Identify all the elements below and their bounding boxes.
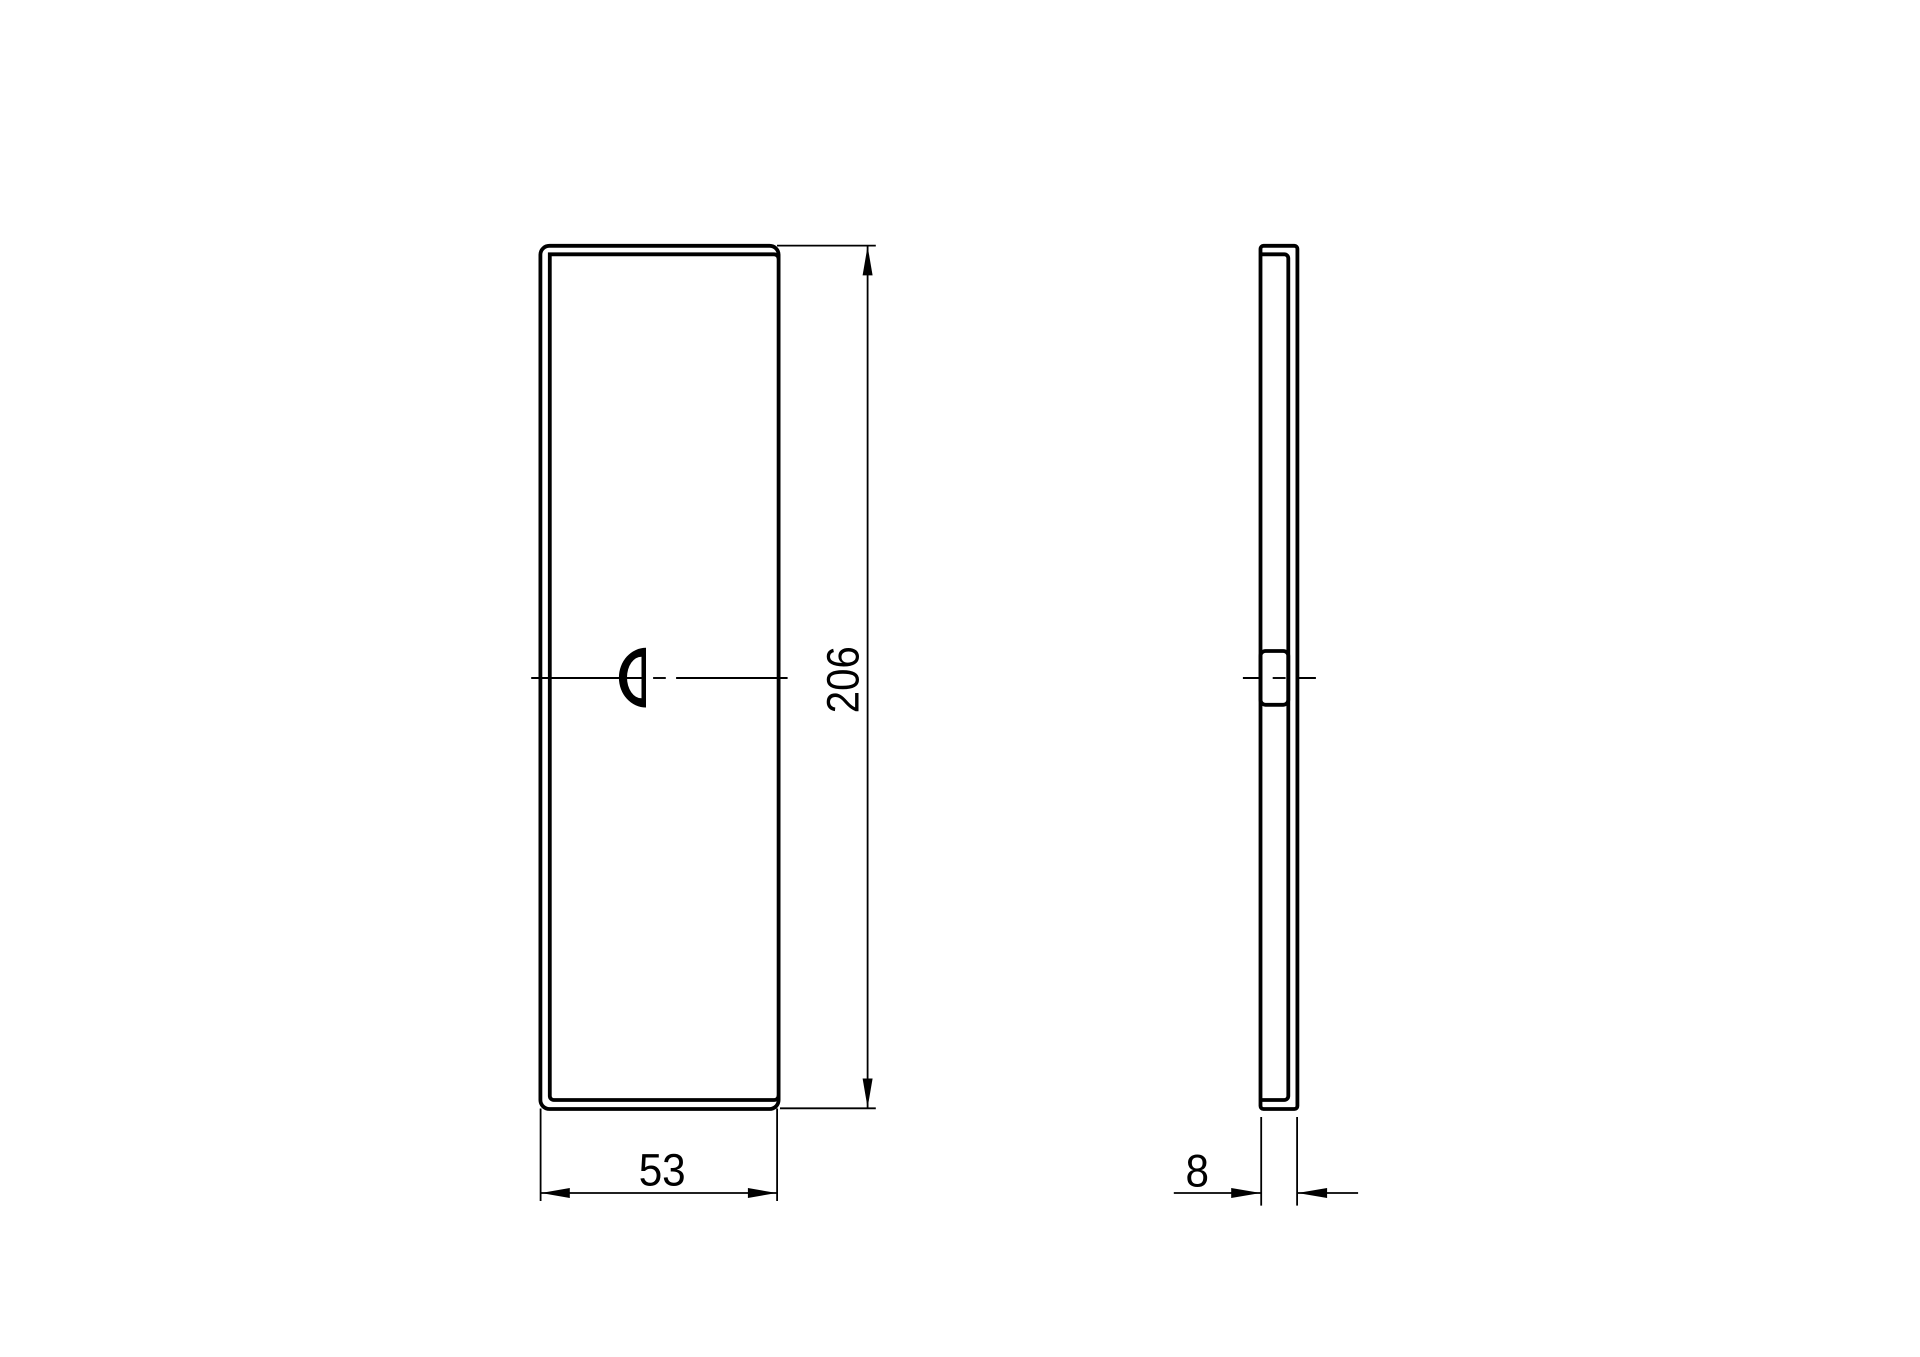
svg-text:8: 8 xyxy=(1185,1146,1209,1197)
svg-text:53: 53 xyxy=(639,1144,686,1195)
svg-text:206: 206 xyxy=(817,646,868,713)
